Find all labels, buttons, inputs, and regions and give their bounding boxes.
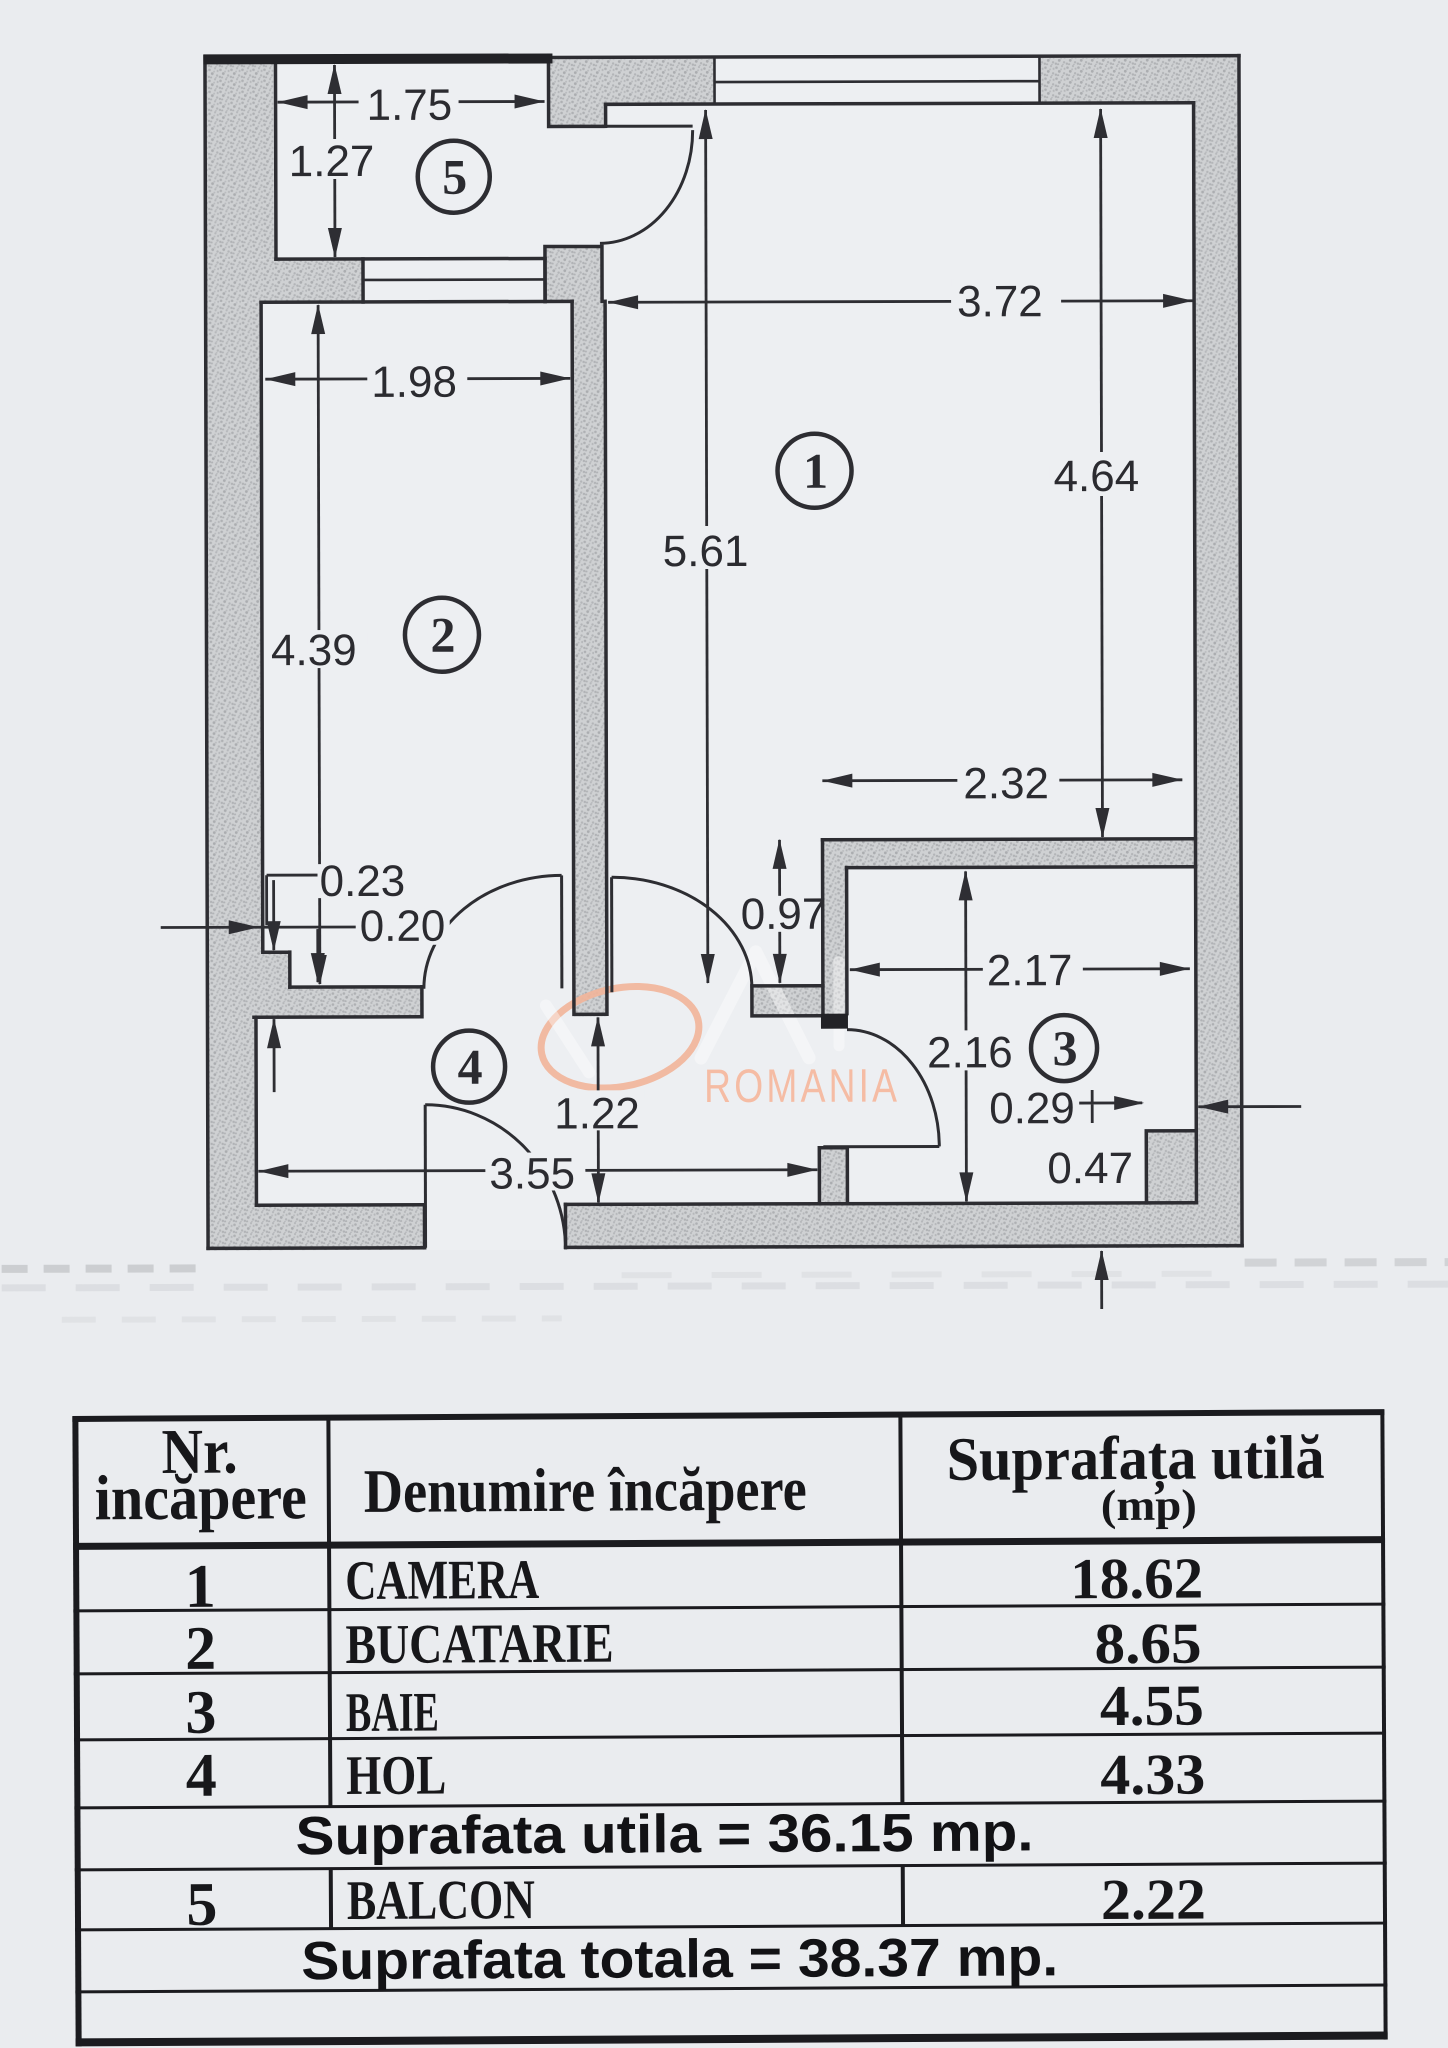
svg-text:4.33: 4.33 (1100, 1742, 1205, 1808)
svg-text:5: 5 (186, 1871, 217, 1939)
svg-text:3.55: 3.55 (489, 1149, 575, 1198)
svg-text:Suprafata totala = 38.37 mp.: Suprafata totala = 38.37 mp. (301, 1927, 1058, 1991)
svg-text:5.61: 5.61 (663, 527, 749, 576)
svg-text:2: 2 (185, 1615, 216, 1683)
svg-text:1: 1 (803, 443, 828, 499)
svg-text:0.29: 0.29 (989, 1084, 1075, 1133)
svg-text:1.98: 1.98 (371, 358, 457, 407)
svg-text:2.17: 2.17 (987, 946, 1073, 995)
svg-text:incăpere: incăpere (95, 1461, 307, 1533)
svg-text:ROMANIA: ROMANIA (704, 1059, 900, 1113)
svg-text:4: 4 (186, 1742, 217, 1810)
svg-text:0.47: 0.47 (1047, 1144, 1133, 1193)
svg-text:4.64: 4.64 (1053, 452, 1139, 501)
svg-text:HOL: HOL (346, 1744, 446, 1807)
svg-text:3: 3 (1052, 1020, 1077, 1076)
svg-text:BAIE: BAIE (346, 1682, 439, 1744)
svg-text:18.62: 18.62 (1070, 1546, 1203, 1612)
svg-text:0.23: 0.23 (320, 857, 406, 906)
svg-text:3.72: 3.72 (957, 277, 1043, 326)
svg-text:1: 1 (185, 1553, 216, 1621)
svg-text:4.55: 4.55 (1100, 1673, 1204, 1739)
svg-text:2.22: 2.22 (1101, 1867, 1206, 1933)
svg-text:2.32: 2.32 (963, 759, 1049, 808)
svg-text:1.27: 1.27 (289, 137, 375, 186)
svg-text:2.16: 2.16 (927, 1028, 1013, 1077)
svg-text:(mp): (mp) (1101, 1481, 1197, 1531)
svg-text:5: 5 (442, 149, 467, 205)
svg-text:0.97: 0.97 (741, 890, 827, 939)
svg-text:3: 3 (185, 1679, 216, 1747)
svg-text:2: 2 (430, 607, 455, 663)
svg-text:0.20: 0.20 (360, 902, 446, 951)
svg-text:BUCATARIE: BUCATARIE (345, 1613, 613, 1676)
svg-text:4: 4 (458, 1039, 483, 1095)
svg-text:1.75: 1.75 (367, 81, 453, 130)
svg-text:8.65: 8.65 (1094, 1611, 1201, 1677)
svg-text:BALCON: BALCON (347, 1869, 535, 1932)
svg-text:Suprafata utila = 36.15 mp.: Suprafata utila = 36.15 mp. (295, 1802, 1033, 1866)
svg-text:4.39: 4.39 (271, 626, 357, 675)
svg-text:Denumire încăpere: Denumire încăpere (364, 1456, 807, 1526)
svg-text:CAMERA: CAMERA (345, 1549, 540, 1612)
svg-text:1.22: 1.22 (554, 1089, 640, 1138)
